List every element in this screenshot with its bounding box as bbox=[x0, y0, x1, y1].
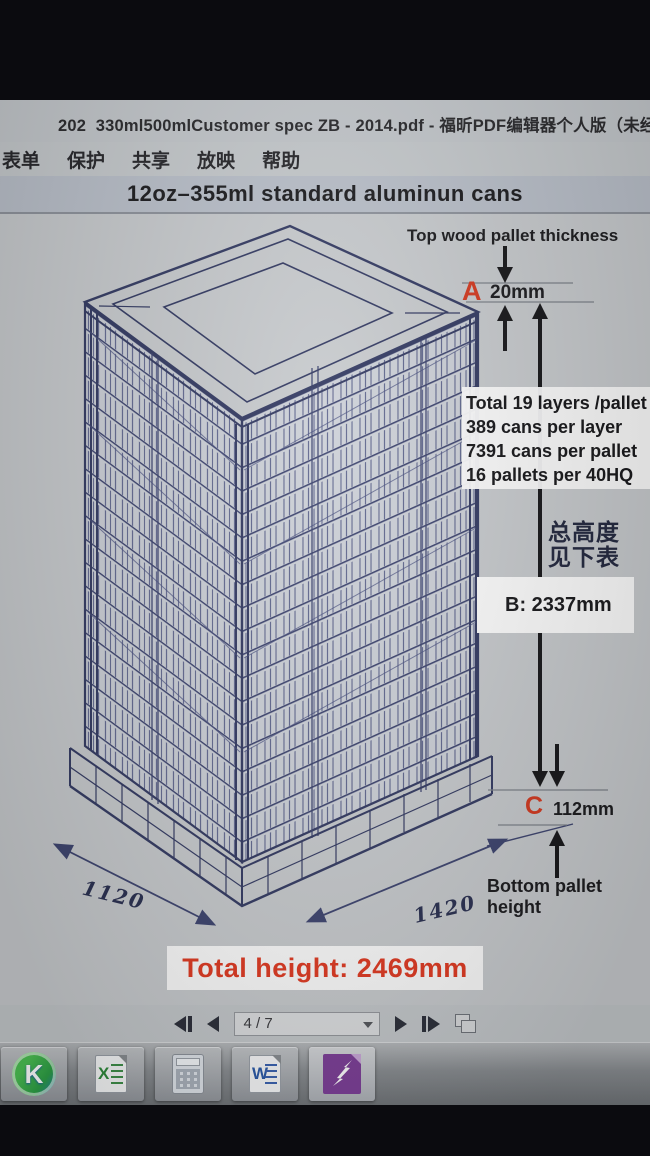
taskbar-button-calculator[interactable] bbox=[155, 1047, 221, 1101]
document-heading-strip: 12oz–355ml standard aluminun cans bbox=[0, 176, 650, 214]
previous-page-icon bbox=[207, 1016, 219, 1032]
taskbar: K X W bbox=[0, 1042, 650, 1105]
page-indicator: 4 / 7 bbox=[235, 1015, 273, 1032]
chevron-down-icon bbox=[363, 1022, 373, 1028]
top-pallet-thickness-label: Top wood pallet thickness bbox=[407, 226, 618, 246]
dimension-a-value: 20mm bbox=[490, 282, 545, 304]
word-icon: W bbox=[249, 1055, 281, 1093]
total-height-note: 总高度 见下表 bbox=[548, 520, 620, 570]
foxit-pdf-icon bbox=[323, 1054, 361, 1094]
can-stack bbox=[85, 304, 478, 862]
document-heading: 12oz–355ml standard aluminun cans bbox=[127, 181, 523, 207]
last-page-button[interactable] bbox=[422, 1016, 440, 1032]
taskbar-button-k-suite[interactable]: K bbox=[1, 1047, 67, 1101]
stats-line-layers: Total 19 layers /pallet bbox=[466, 391, 650, 415]
stats-line-per-layer: 389 cans per layer bbox=[466, 415, 650, 439]
excel-icon: X bbox=[95, 1055, 127, 1093]
photo-of-screen: { "window": { "title": "202 330ml500mlCu… bbox=[0, 0, 650, 1156]
taskbar-button-excel[interactable]: X bbox=[78, 1047, 144, 1101]
stats-line-per-40hq: 16 pallets per 40HQ bbox=[466, 463, 650, 487]
total-height-box: Total height: 2469mm bbox=[167, 946, 483, 990]
first-page-icon bbox=[174, 1016, 186, 1032]
last-page-icon bbox=[428, 1016, 440, 1032]
dimension-b-box: B: 2337mm bbox=[477, 577, 634, 633]
taskbar-button-word[interactable]: W bbox=[232, 1047, 298, 1101]
next-page-icon bbox=[395, 1016, 407, 1032]
k-suite-icon: K bbox=[12, 1052, 56, 1096]
pallet-stats-box: Total 19 layers /pallet 389 cans per lay… bbox=[462, 387, 650, 489]
total-height-note-line2: 见下表 bbox=[548, 545, 620, 570]
dimension-c-value: 112mm bbox=[553, 799, 614, 820]
previous-page-button[interactable] bbox=[207, 1016, 219, 1032]
page-number-input[interactable]: 4 / 7 bbox=[234, 1012, 380, 1036]
calculator-icon bbox=[172, 1054, 204, 1094]
menu-bar: 表单 保护 共享 放映 帮助 bbox=[0, 142, 650, 176]
total-height-note-line1: 总高度 bbox=[548, 520, 620, 545]
menu-item-help[interactable]: 帮助 bbox=[262, 146, 300, 173]
menu-item-form[interactable]: 表单 bbox=[2, 146, 40, 173]
first-page-button[interactable] bbox=[174, 1016, 192, 1032]
menu-item-share[interactable]: 共享 bbox=[132, 146, 170, 173]
total-height-value: Total height: 2469mm bbox=[182, 953, 468, 984]
window-titlebar: 202 330ml500mlCustomer spec ZB - 2014.pd… bbox=[0, 100, 650, 142]
menu-item-protect[interactable]: 保护 bbox=[67, 146, 105, 173]
taskbar-button-foxit[interactable] bbox=[309, 1047, 375, 1101]
menu-item-play[interactable]: 放映 bbox=[197, 146, 235, 173]
pdf-nav-toolbar: 4 / 7 bbox=[0, 1005, 650, 1042]
window-title: 202 330ml500mlCustomer spec ZB - 2014.pd… bbox=[58, 112, 650, 136]
bottom-pallet-height-label: Bottom pallet height bbox=[487, 876, 650, 918]
dimension-a-letter: A bbox=[462, 276, 482, 307]
next-page-button[interactable] bbox=[395, 1016, 407, 1032]
stats-line-per-pallet: 7391 cans per pallet bbox=[466, 439, 650, 463]
dimension-b-value: B: 2337mm bbox=[477, 577, 634, 633]
dimension-c-letter: C bbox=[525, 792, 543, 821]
pdf-editor-window: 202 330ml500mlCustomer spec ZB - 2014.pd… bbox=[0, 100, 650, 1105]
page-thumbnails-button[interactable] bbox=[455, 1014, 477, 1034]
